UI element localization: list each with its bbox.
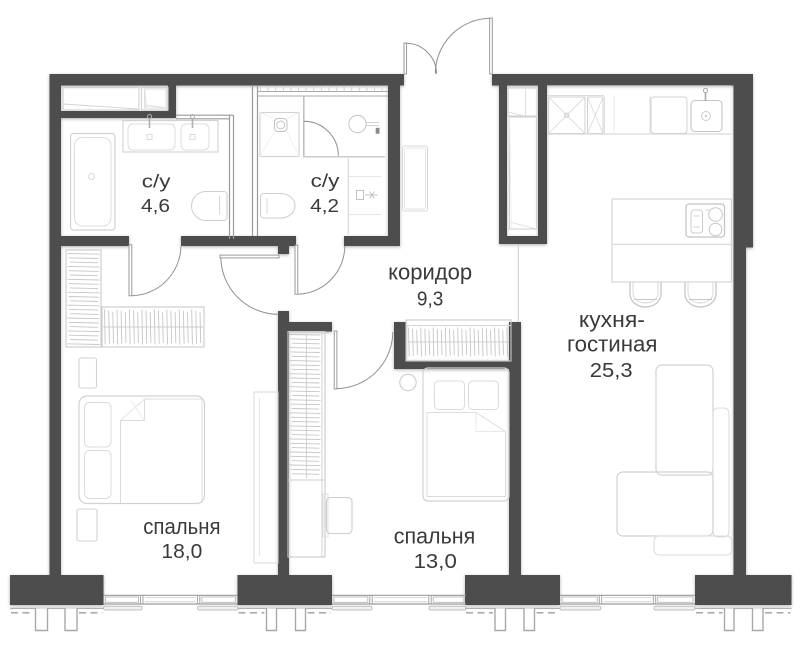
svg-text:4,2: 4,2 xyxy=(310,196,339,216)
svg-text:гостиная: гостиная xyxy=(567,332,658,357)
svg-text:коридор: коридор xyxy=(388,259,472,284)
svg-text:4,6: 4,6 xyxy=(141,196,170,216)
svg-text:с/у: с/у xyxy=(311,171,340,191)
svg-text:25,3: 25,3 xyxy=(590,359,633,382)
svg-text:18,0: 18,0 xyxy=(161,540,202,563)
svg-text:13,0: 13,0 xyxy=(414,550,457,573)
svg-text:кухня-: кухня- xyxy=(579,307,645,332)
svg-text:с/у: с/у xyxy=(142,172,171,192)
svg-text:спальня: спальня xyxy=(394,524,476,549)
svg-text:9,3: 9,3 xyxy=(417,288,443,311)
svg-text:спальня: спальня xyxy=(143,514,220,539)
